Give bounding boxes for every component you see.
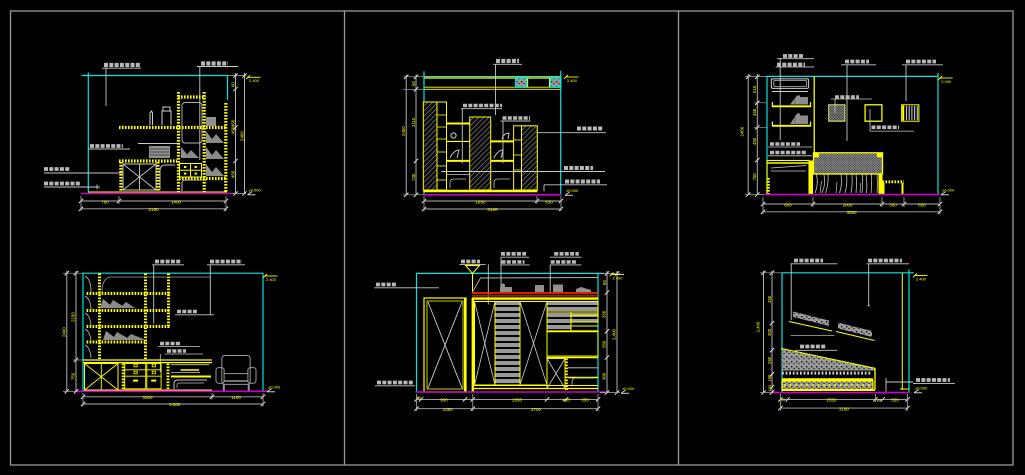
svg-text:1100: 1100 — [231, 395, 241, 400]
svg-text:900: 900 — [602, 372, 607, 380]
svg-text:530: 530 — [545, 200, 553, 205]
svg-text:80: 80 — [602, 280, 607, 285]
svg-text:150: 150 — [767, 374, 772, 382]
svg-text:60: 60 — [231, 82, 236, 87]
svg-text:3,500: 3,500 — [169, 402, 181, 407]
svg-text:3180: 3180 — [487, 207, 498, 212]
svg-text:±0.000: ±0.000 — [566, 188, 579, 193]
svg-text:2150: 2150 — [148, 207, 159, 212]
svg-text:2,400: 2,400 — [756, 321, 761, 333]
svg-text:±0.000: ±0.000 — [942, 188, 955, 193]
svg-text:2400: 2400 — [740, 126, 745, 136]
svg-text:±0.000: ±0.000 — [622, 386, 635, 391]
svg-text:350: 350 — [581, 398, 589, 403]
svg-text:300: 300 — [889, 202, 897, 207]
svg-text:2700: 2700 — [531, 407, 542, 412]
svg-text:730: 730 — [411, 173, 416, 181]
svg-text:750: 750 — [752, 173, 757, 181]
svg-text:2.400: 2.400 — [613, 275, 624, 280]
svg-text:650: 650 — [918, 202, 926, 207]
svg-text:450: 450 — [752, 137, 757, 145]
svg-text:1650: 1650 — [512, 398, 523, 403]
svg-text:900: 900 — [440, 398, 448, 403]
svg-text:450: 450 — [767, 295, 772, 303]
svg-text:455: 455 — [752, 108, 757, 116]
svg-text:300: 300 — [767, 328, 772, 336]
svg-text:350: 350 — [602, 340, 607, 348]
svg-text:1650: 1650 — [475, 200, 486, 205]
svg-text:2110: 2110 — [411, 117, 416, 127]
svg-text:450: 450 — [231, 126, 236, 134]
svg-text:350: 350 — [602, 310, 607, 318]
svg-text:450: 450 — [562, 398, 570, 403]
svg-text:60: 60 — [411, 81, 416, 86]
svg-text:600: 600 — [784, 202, 792, 207]
svg-text:2400: 2400 — [240, 131, 245, 141]
svg-text:50: 50 — [417, 396, 421, 400]
svg-text:2000: 2000 — [842, 202, 853, 207]
svg-text:±0.000: ±0.000 — [268, 385, 281, 390]
svg-text:2.400: 2.400 — [266, 277, 277, 282]
svg-text:2550: 2550 — [826, 398, 837, 403]
svg-text:±0.000: ±0.000 — [249, 188, 262, 193]
svg-text:100: 100 — [767, 384, 772, 391]
svg-text:3550: 3550 — [846, 210, 857, 215]
svg-text:1350: 1350 — [443, 407, 454, 412]
svg-text:±0.000: ±0.000 — [915, 386, 928, 391]
svg-text:2.400: 2.400 — [941, 79, 952, 84]
svg-text:80: 80 — [877, 398, 882, 403]
svg-text:2400: 2400 — [401, 126, 406, 136]
svg-text:550: 550 — [891, 398, 899, 403]
svg-text:450: 450 — [231, 170, 236, 178]
svg-text:615: 615 — [752, 85, 757, 93]
svg-text:2.400: 2.400 — [249, 78, 260, 83]
svg-text:2.400: 2.400 — [916, 276, 927, 281]
svg-text:50: 50 — [781, 398, 785, 402]
svg-text:750: 750 — [101, 200, 109, 205]
svg-text:2,400: 2,400 — [612, 328, 617, 340]
svg-text:750: 750 — [71, 372, 76, 380]
svg-text:3180: 3180 — [839, 406, 850, 411]
svg-text:2400: 2400 — [61, 327, 66, 337]
svg-text:2.400: 2.400 — [567, 78, 578, 83]
svg-text:250: 250 — [767, 356, 772, 364]
svg-text:2150: 2150 — [71, 312, 76, 322]
svg-text:450: 450 — [231, 119, 236, 127]
svg-text:1400: 1400 — [171, 200, 182, 205]
svg-text:3300: 3300 — [142, 395, 153, 400]
